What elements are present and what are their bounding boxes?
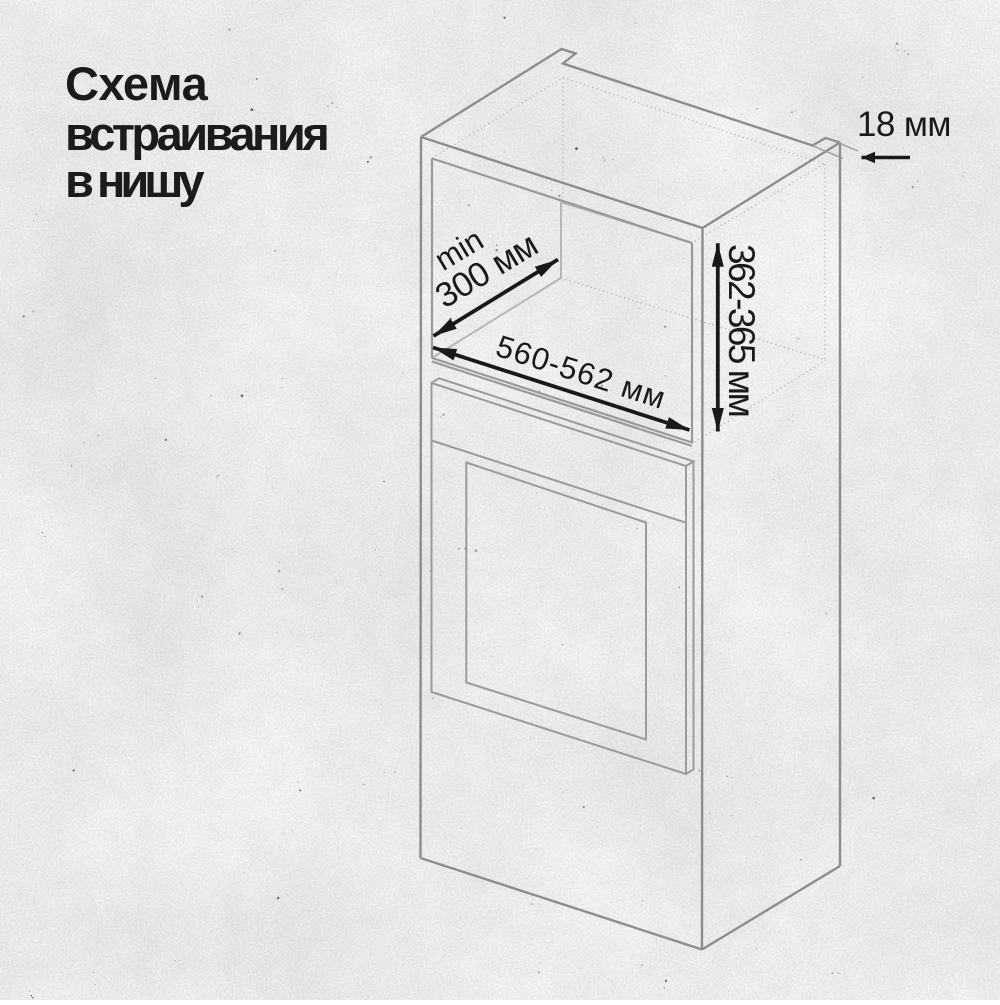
svg-text:в нишу: в нишу [65, 154, 204, 207]
svg-text:18 мм: 18 мм [857, 105, 951, 144]
svg-text:Схема: Схема [65, 57, 209, 110]
svg-text:362-365 мм: 362-365 мм [721, 244, 762, 416]
svg-text:встраивания: встраивания [65, 107, 327, 160]
